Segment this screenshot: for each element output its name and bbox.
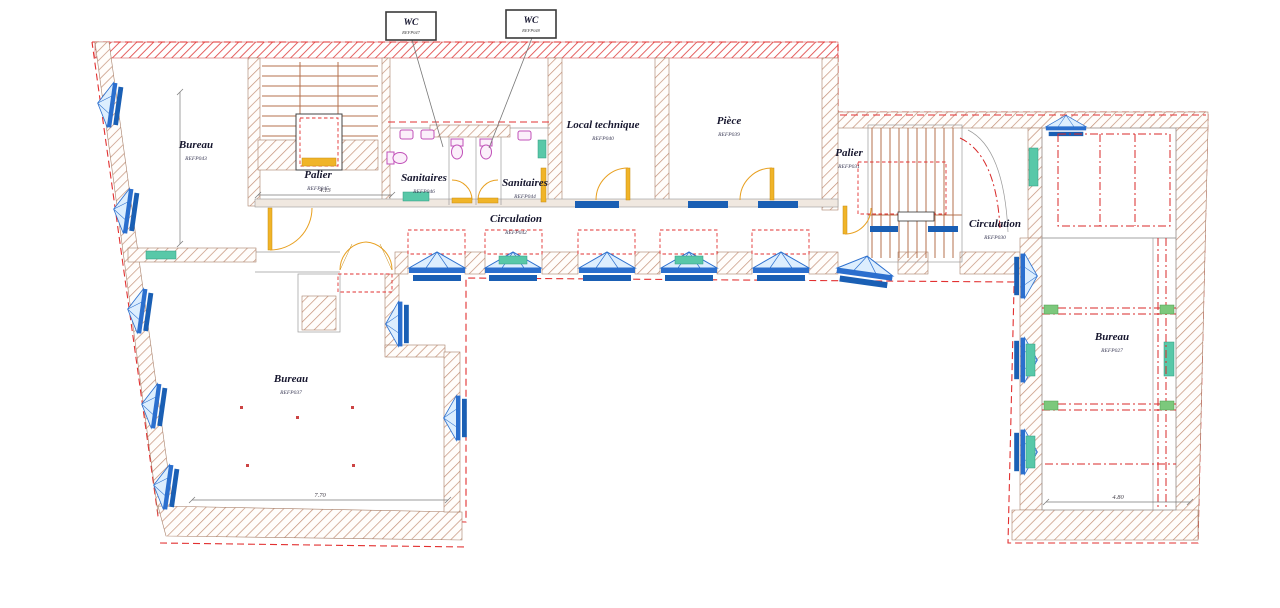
door-leaf-palier-right [843, 206, 847, 234]
wall-bureau-bottom-step [385, 345, 445, 357]
room-label-bureau-bottom: Bureau [273, 373, 308, 385]
room-label-bureau-top-left: Bureau [178, 139, 213, 151]
wall-bureau-bottom [158, 506, 462, 540]
dimension-value: 7.70 [314, 492, 326, 499]
radiator [1026, 436, 1035, 468]
wall-right-section-top [838, 112, 1208, 128]
vestibule-hatch [302, 296, 336, 330]
sanitaires-front-wall [430, 125, 510, 137]
wall-bureau-stairs [248, 58, 260, 206]
dimension-value: 4.80 [1112, 494, 1124, 501]
door-threshold [758, 201, 798, 208]
door-threshold [575, 201, 619, 208]
wall-piece-right [822, 58, 838, 210]
door-threshold [688, 201, 728, 208]
wc-label: WC [404, 18, 419, 28]
stair-landing-hatch [342, 140, 378, 170]
room-code: REFP046 [412, 188, 435, 195]
stall-threshold [478, 198, 498, 203]
stair-level-tag [898, 212, 934, 221]
floor-plan-drawing: WC REFP047 WC REFP048 4.13 7.70 4.80 Bur… [0, 0, 1280, 608]
room-code: REFP039 [717, 132, 740, 138]
radiator [499, 256, 527, 264]
sink-icon [421, 130, 434, 139]
wc-code: REFP048 [521, 28, 540, 33]
wc-code: REFP047 [401, 30, 420, 35]
sink-icon [400, 130, 413, 139]
room-label-piece: Pièce [717, 115, 742, 127]
wall-corridor-bottom-seg [635, 252, 660, 274]
radiator [1026, 344, 1035, 376]
wall-corridor-top [255, 199, 838, 207]
floor-plan-page: WC REFP047 WC REFP048 4.13 7.70 4.80 Bur… [0, 0, 1280, 608]
room-label-palier-left: Palier [304, 169, 332, 181]
room-code: REFP030 [983, 235, 1006, 241]
room-code: REFP042 [504, 229, 527, 236]
room-label-circulation-right: Circulation [969, 218, 1021, 230]
wall-corridor-bottom-seg [960, 252, 1020, 274]
wall-sanitaires-localtech [548, 58, 562, 205]
room-label-circulation-main: Circulation [490, 213, 542, 225]
room-label-local-technique: Local technique [565, 119, 639, 131]
toilet-icon [451, 139, 463, 159]
top-wall-red-hatch [95, 42, 838, 58]
room-code: REFP031 [837, 164, 860, 170]
radiator [1029, 148, 1038, 186]
partition-pad [1044, 305, 1058, 314]
radiator [146, 251, 176, 259]
room-code: REFP045 [306, 185, 329, 192]
door-leaf [268, 208, 272, 250]
wall-wing-bottom [1012, 510, 1198, 540]
radiator [675, 256, 703, 264]
stall-threshold [452, 198, 472, 203]
toilet-icon [480, 139, 492, 159]
partition-pad [1160, 401, 1174, 410]
room-code: REFP044 [513, 193, 536, 200]
wall-corridor-bottom-seg [898, 252, 928, 274]
room-label-bureau-right: Bureau [1094, 331, 1129, 343]
wall-corridor-bottom-seg [465, 252, 485, 274]
elevator-door [302, 158, 336, 166]
stair-threshold [928, 226, 958, 232]
room-code: REFP040 [591, 135, 614, 142]
room-code: REFP037 [279, 390, 302, 396]
door-leaf-local-technique [626, 168, 630, 200]
room-code: REFP027 [1100, 348, 1123, 354]
sink-icon [518, 131, 531, 140]
room-code: REFP043 [184, 155, 207, 162]
toilet-icon [387, 152, 407, 164]
wall-palier-sanitaires [382, 58, 390, 205]
partition-pad [1160, 305, 1174, 314]
wall-corridor-bottom-seg [717, 252, 752, 274]
partition-pad [1044, 401, 1058, 410]
room-label-sanitaires-right: Sanitaires [502, 177, 548, 189]
stair-landing-hatch [258, 140, 296, 170]
wall-corridor-bottom-seg [542, 252, 578, 274]
wc-label: WC [524, 16, 539, 26]
stair-threshold [870, 226, 898, 232]
room-label-sanitaires-left: Sanitaires [401, 172, 447, 184]
wall-corridor-bottom-seg [395, 252, 408, 274]
room-label-palier-right: Palier [835, 147, 863, 159]
wall-corridor-bottom-seg [809, 252, 838, 274]
wall-localtech-piece [655, 58, 669, 205]
radiator [538, 140, 546, 158]
door-leaf-piece [770, 168, 774, 200]
